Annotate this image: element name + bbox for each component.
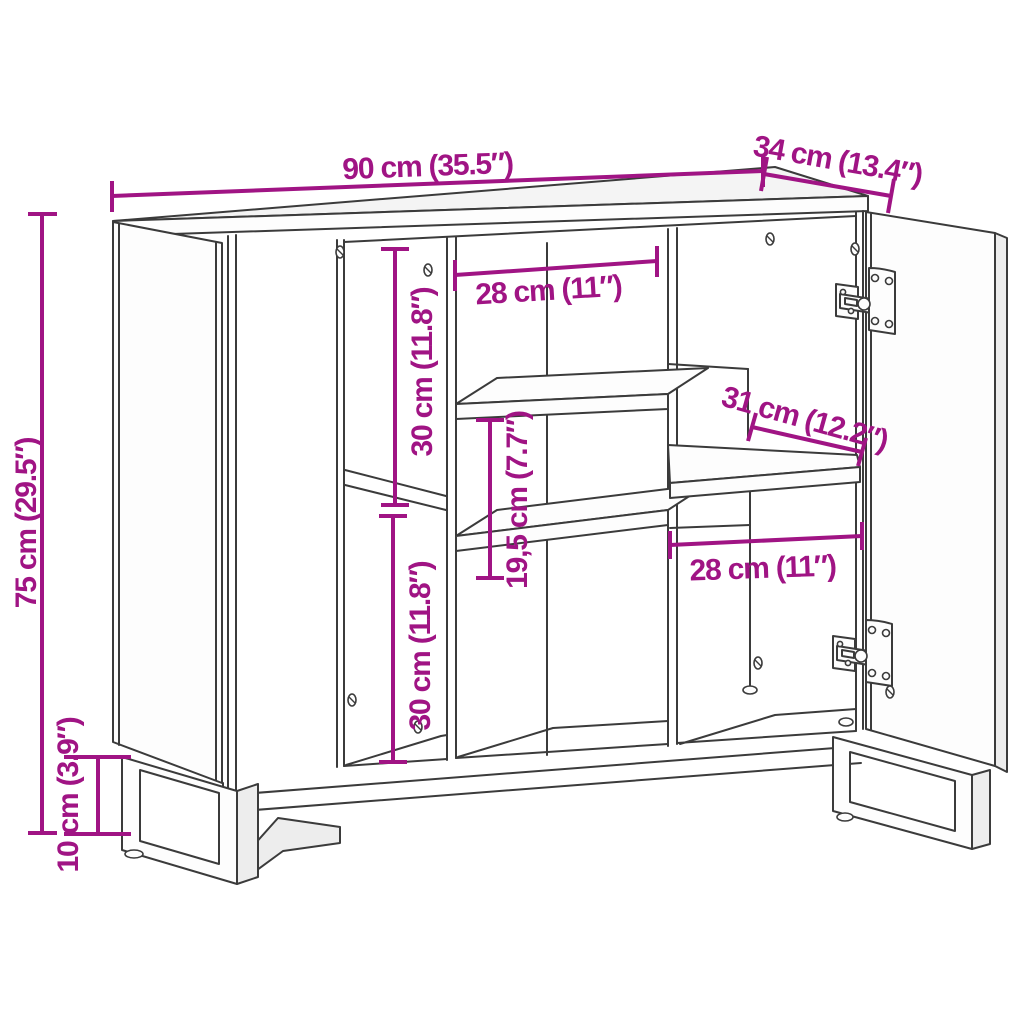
left-door-panel: [113, 222, 222, 783]
dimension-overall-height-label: 75 cm (29.5″): [10, 438, 43, 609]
screw-icon: [424, 264, 432, 276]
dimension-shelf-spacing-label: 19,5 cm (7.7″): [501, 411, 534, 589]
dimension-left-lower-height-label: 30 cm (11.8″): [404, 561, 437, 730]
screw-icon: [754, 657, 762, 669]
screw-icon: [851, 243, 859, 255]
right-door-edge: [995, 233, 1007, 772]
screw-icon: [348, 694, 356, 706]
dimension-middle-width-label: 28 cm (11″): [474, 270, 622, 312]
left-leg: [122, 757, 340, 884]
dimension-overall-width-label: 90 cm (35.5″): [342, 147, 514, 187]
screw-icon: [743, 686, 757, 694]
right-column-shelf: [668, 445, 860, 498]
left-door-open: [113, 222, 222, 783]
middle-upper-shelf: [456, 368, 708, 419]
dimension-right-width: 28 cm (11″): [670, 522, 862, 588]
dimension-left-upper-height-label: 30 cm (11.8″): [406, 287, 439, 456]
dimension-overall-height: 75 cm (29.5″): [10, 214, 57, 833]
screw-icon: [766, 233, 774, 245]
diagram-canvas: 90 cm (35.5″) 34 cm (13.4″) 75 cm (29.5″…: [0, 0, 1024, 1024]
screw-icon: [336, 246, 344, 258]
dimension-left-lower-height: 30 cm (11.8″): [379, 516, 437, 762]
dimension-right-width-label: 28 cm (11″): [689, 549, 837, 587]
dimension-left-upper-height: 30 cm (11.8″): [381, 249, 439, 505]
dimension-shelf-spacing: 19,5 cm (7.7″): [476, 411, 534, 589]
screw-icon: [839, 718, 853, 726]
dimension-middle-width: 28 cm (11″): [455, 246, 657, 311]
furniture-dimension-diagram: 90 cm (35.5″) 34 cm (13.4″) 75 cm (29.5″…: [0, 0, 1024, 1024]
legs: [122, 737, 990, 884]
dimension-leg-height-label: 10 cm (3.9″): [52, 717, 85, 872]
screw-icon: [886, 686, 894, 698]
